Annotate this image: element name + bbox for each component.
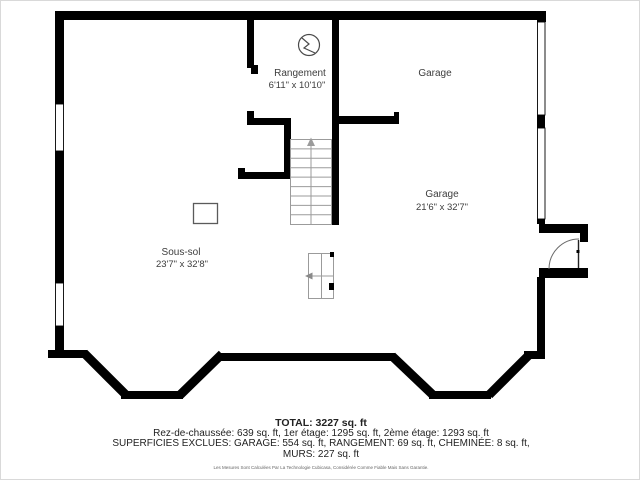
label-sous-sol-dims: 23'7" x 32'8" — [156, 259, 208, 270]
column-post — [194, 204, 218, 224]
wall-closet-bottom-cap — [238, 168, 245, 179]
wall-bottom-bay-right — [429, 391, 491, 399]
wall-rangement-left-upper — [247, 20, 254, 68]
utility-circle — [299, 35, 320, 56]
wall-garage-partition-cap — [394, 112, 399, 116]
wall-left-middle — [55, 151, 64, 283]
lower-stair-landing — [305, 252, 334, 299]
window-left-lower — [56, 283, 64, 326]
door-alcove-bottom — [539, 268, 588, 278]
wall-rangement-door-stop — [251, 65, 258, 74]
label-garage: Garage — [425, 189, 459, 200]
wall-diagonal-right-b — [489, 355, 529, 395]
wall-closet-top — [247, 118, 291, 125]
wall-diagonal-left-a — [84, 353, 126, 395]
walls-area: MURS: 227 sq. ft — [1, 450, 640, 461]
label-rangement: Rangement — [274, 68, 326, 79]
wall-right-mid — [537, 115, 545, 128]
excluded-areas: SUPERFICIES EXCLUES: GARAGE: 554 sq. ft,… — [1, 439, 640, 450]
lightning-circle-icon — [299, 35, 320, 56]
door-alcove-top — [539, 224, 588, 233]
disclaimer-text: Les Mesures Sont Calculées Par La Techno… — [1, 465, 640, 470]
label-garage-dims: 21'6" x 32'7" — [416, 202, 468, 213]
label-garage-upper: Garage — [418, 68, 452, 79]
door-alcove-stub — [580, 233, 588, 242]
lower-stair-wall-tick-top — [330, 252, 334, 257]
wall-left-upper — [55, 11, 64, 104]
wall-bottom-bay-left — [121, 391, 183, 399]
wall-closet-bottom — [238, 172, 291, 179]
lower-stair-wall-tick-right — [329, 283, 334, 290]
wall-garage-partition — [339, 116, 399, 124]
wall-top — [56, 11, 546, 20]
door-swing-arc — [549, 239, 579, 269]
area-summary: TOTAL: 3227 sq. ft Rez-de-chaussée: 639 … — [1, 418, 640, 470]
door-hinge-dot — [577, 250, 580, 253]
window-right-upper — [538, 22, 546, 115]
wall-right-above-door — [537, 219, 545, 224]
window-right-lower — [538, 128, 546, 219]
wall-closet-right — [284, 125, 291, 178]
wall-stairwell-right — [332, 20, 339, 225]
staircase — [291, 138, 332, 225]
window-left-upper — [56, 104, 64, 151]
wall-right-top-corner — [537, 11, 546, 22]
wall-bottom-middle — [217, 353, 395, 361]
total-area: TOTAL: 3227 sq. ft — [1, 418, 640, 429]
wall-bottom-left — [48, 350, 87, 358]
wall-diagonal-right-a — [392, 356, 433, 395]
floorplan: Rangement 6'11" x 10'10" Garage Garage 2… — [1, 1, 640, 413]
wall-diagonal-left-b — [180, 354, 222, 395]
floorplan-page: Rangement 6'11" x 10'10" Garage Garage 2… — [0, 0, 640, 480]
entry-door — [549, 239, 580, 269]
wall-right-lower — [537, 277, 545, 355]
label-sous-sol: Sous-sol — [162, 247, 201, 258]
label-rangement-dims: 6'11" x 10'10" — [269, 80, 326, 91]
